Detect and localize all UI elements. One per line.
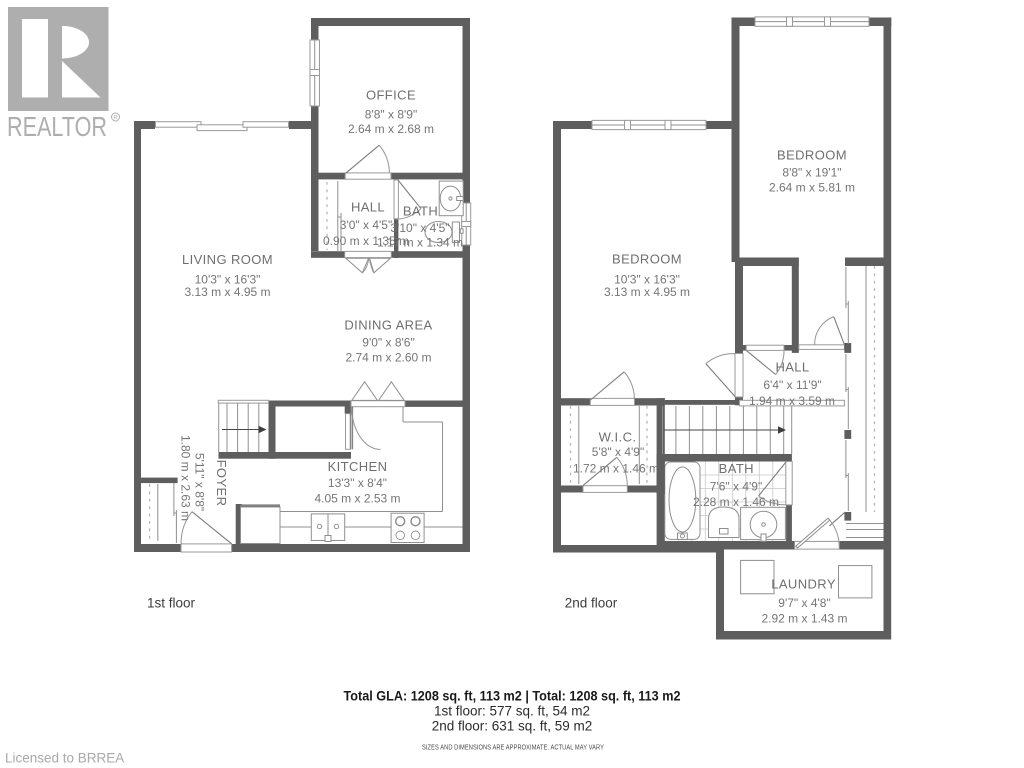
svg-text:3.13 m x 4.95 m: 3.13 m x 4.95 m	[604, 285, 690, 299]
svg-text:3.13 m x 4.95 m: 3.13 m x 4.95 m	[184, 285, 270, 299]
svg-text:2nd floor: 2nd floor	[565, 596, 618, 611]
svg-text:1.72 m x 1.46 m: 1.72 m x 1.46 m	[573, 462, 659, 476]
svg-text:6'4" x 11'9": 6'4" x 11'9"	[763, 378, 821, 392]
svg-text:1st floor: 577 sq. ft, 54 m2: 1st floor: 577 sq. ft, 54 m2	[434, 704, 590, 719]
svg-text:Licensed to BRREA: Licensed to BRREA	[5, 751, 124, 766]
svg-text:BATH: BATH	[403, 204, 438, 219]
svg-text:2.74 m x 2.60 m: 2.74 m x 2.60 m	[345, 351, 431, 365]
svg-text:4.05 m x 2.53 m: 4.05 m x 2.53 m	[314, 492, 400, 506]
svg-text:8'8" x 19'1": 8'8" x 19'1"	[782, 166, 841, 180]
svg-text:BEDROOM: BEDROOM	[612, 252, 682, 267]
svg-text:13'3" x 8'4": 13'3" x 8'4"	[328, 476, 387, 490]
svg-text:1.17 m x 1.34 m: 1.17 m x 1.34 m	[377, 236, 463, 250]
svg-text:1st floor: 1st floor	[147, 596, 196, 611]
svg-text:3'0" x 4'5": 3'0" x 4'5"	[340, 218, 392, 232]
svg-text:5'8" x 4'9": 5'8" x 4'9"	[592, 445, 644, 459]
svg-text:5'11" x 8'8": 5'11" x 8'8"	[193, 453, 207, 511]
svg-text:1.94 m x 3.59 m: 1.94 m x 3.59 m	[749, 394, 835, 408]
svg-text:HALL: HALL	[775, 360, 809, 375]
svg-text:Total GLA: 1208 sq. ft, 113 m2: Total GLA: 1208 sq. ft, 113 m2 | Total: …	[344, 689, 681, 704]
svg-text:LIVING ROOM: LIVING ROOM	[182, 252, 273, 267]
svg-text:2nd floor: 631 sq. ft, 59 m2: 2nd floor: 631 sq. ft, 59 m2	[432, 719, 593, 734]
svg-text:9'0" x 8'6": 9'0" x 8'6"	[362, 336, 414, 350]
svg-text:OFFICE: OFFICE	[366, 88, 416, 103]
svg-text:2.28 m x 1.46 m: 2.28 m x 1.46 m	[693, 495, 779, 509]
svg-text:HALL: HALL	[351, 200, 385, 215]
svg-text:7'6" x 4'9": 7'6" x 4'9"	[710, 480, 762, 494]
svg-text:SIZES AND DIMENSIONS ARE APPRO: SIZES AND DIMENSIONS ARE APPROXIMATE. AC…	[422, 743, 604, 752]
svg-text:3'10" x 4'5": 3'10" x 4'5"	[390, 221, 449, 235]
svg-text:KITCHEN: KITCHEN	[328, 459, 388, 474]
svg-text:2.64 m x 5.81 m: 2.64 m x 5.81 m	[769, 181, 855, 195]
svg-text:BEDROOM: BEDROOM	[777, 148, 847, 163]
svg-text:2.64 m x 2.68 m: 2.64 m x 2.68 m	[348, 122, 434, 136]
svg-text:1.80 m x 2.63 m: 1.80 m x 2.63 m	[179, 435, 193, 521]
svg-text:BATH: BATH	[719, 461, 754, 476]
svg-text:W.I.C.: W.I.C.	[599, 430, 637, 445]
svg-text:9'7" x 4'8": 9'7" x 4'8"	[778, 596, 830, 610]
svg-text:8'8" x 8'9": 8'8" x 8'9"	[365, 108, 417, 122]
svg-text:FOYER: FOYER	[214, 460, 229, 507]
svg-text:LAUNDRY: LAUNDRY	[771, 577, 836, 592]
svg-text:DINING AREA: DINING AREA	[344, 318, 432, 333]
svg-text:REALTOR: REALTOR	[7, 111, 107, 142]
svg-text:R: R	[113, 115, 118, 121]
svg-text:2.92 m x 1.43 m: 2.92 m x 1.43 m	[761, 612, 847, 626]
